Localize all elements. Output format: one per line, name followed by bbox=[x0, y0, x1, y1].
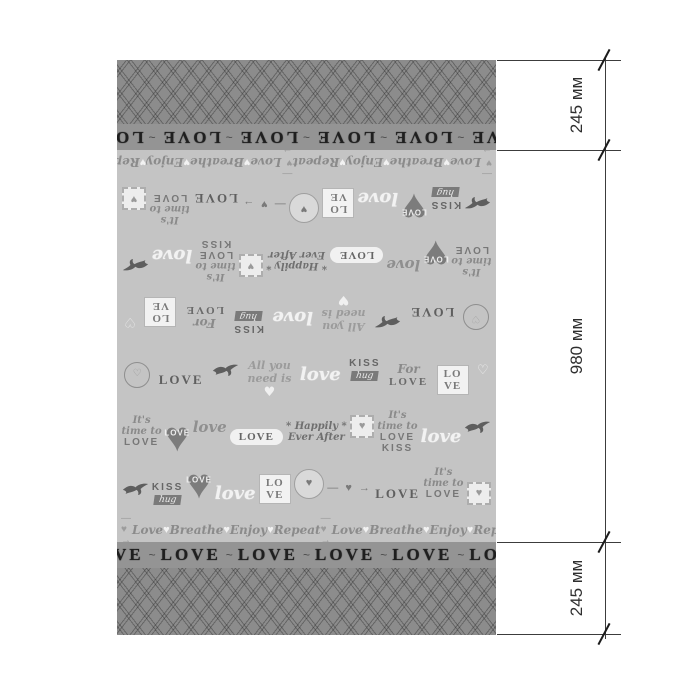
motif-card: LOVE bbox=[322, 189, 354, 219]
motif-stamp: ♥ bbox=[122, 187, 147, 211]
motif-stamp: ♥ bbox=[239, 254, 264, 278]
motif-kiss: KISShug bbox=[233, 311, 264, 334]
band-ornament-icon: ~ bbox=[303, 130, 310, 144]
band-ornament-icon: ~ bbox=[149, 548, 156, 562]
motif-heart: ♥LOVE bbox=[402, 190, 427, 228]
motif-line: love bbox=[215, 483, 256, 504]
motif-line: — ♥ → bbox=[241, 198, 286, 210]
arrow-icon: — ♥ → bbox=[321, 517, 332, 542]
swallow-icon bbox=[122, 259, 149, 273]
motif-scriptw: love bbox=[357, 188, 398, 209]
heart-separator-icon: ♥ bbox=[184, 157, 191, 169]
motif-heart: ♥LOVE bbox=[165, 418, 190, 456]
edge-row: — ♥ →Love♥Breathe♥Enjoy♥Repeat— ♥ →Love♥… bbox=[117, 150, 496, 175]
motif-line: KISS bbox=[233, 323, 264, 334]
motif-allyou: All youneed is♥ bbox=[322, 292, 366, 333]
motif-arrow: — ♥ → bbox=[327, 483, 372, 495]
motif-line: KISS bbox=[152, 482, 183, 493]
motif-heart: ♥LOVE bbox=[423, 237, 448, 275]
motif-scriptw: love bbox=[300, 364, 341, 385]
motif-scriptw: love bbox=[215, 483, 256, 504]
edge-word: Breathe bbox=[390, 156, 444, 170]
motif-line: hug bbox=[350, 371, 379, 381]
motif-banner: LOVE bbox=[330, 248, 383, 264]
pattern-top-half: ♡LOVEAll youneed is♥loveKISShugForLOVELO… bbox=[117, 150, 496, 346]
motif-line: KISS bbox=[200, 239, 231, 250]
motif-line: LOVE bbox=[426, 489, 461, 500]
motif-line: ♥ bbox=[476, 488, 483, 500]
motif-line: VE bbox=[266, 489, 283, 501]
heart-separator-icon: ♥ bbox=[140, 157, 147, 169]
motif-line: LOVE bbox=[193, 191, 238, 207]
motif-line: love bbox=[386, 257, 420, 275]
motif-line: LOVE bbox=[389, 376, 428, 388]
motif-moon: ♥ bbox=[294, 469, 324, 499]
love-band-word: LOVE bbox=[315, 545, 375, 565]
motif-line: KISS bbox=[430, 199, 461, 210]
motif-script: love bbox=[386, 257, 420, 275]
motif-timeto: It'stime toLOVE bbox=[451, 244, 491, 277]
motif-line: KISS bbox=[382, 443, 413, 454]
heart-label: LOVE bbox=[423, 255, 449, 264]
motif-line: love bbox=[193, 418, 227, 436]
motif-moon: ♥ bbox=[289, 194, 319, 224]
heart-label: LOVE bbox=[164, 428, 190, 437]
motif-line: ♡ bbox=[133, 369, 142, 380]
dimension-label-middle: 980 мм bbox=[567, 318, 587, 374]
pattern-row: It'stime toLOVE♥LOVEloveLOVE* Happily *E… bbox=[117, 403, 496, 460]
motif-forlove: ForLOVE bbox=[389, 362, 428, 388]
love-band-word: LOVE bbox=[117, 545, 144, 565]
motif-line: LOVE bbox=[339, 250, 374, 262]
motif-arrow: — ♥ → bbox=[241, 198, 286, 210]
love-band-word: LOVE bbox=[315, 127, 375, 147]
band-ornament-icon: ~ bbox=[380, 130, 387, 144]
motif-line: ♡ bbox=[477, 363, 489, 377]
edge-word: Breathe bbox=[369, 523, 423, 537]
edge-row: — ♥ →Love♥Breathe♥Enjoy♥Repeat— ♥ →Love♥… bbox=[117, 517, 496, 542]
edge-word: Enjoy bbox=[146, 156, 183, 170]
edge-word: Enjoy bbox=[346, 156, 383, 170]
motif-line: love bbox=[421, 426, 462, 447]
motif-line: It's bbox=[462, 266, 480, 277]
edge-word: Repeat bbox=[292, 156, 339, 170]
edge-word: Enjoy bbox=[430, 523, 467, 537]
motif-card: LOVE bbox=[144, 298, 176, 328]
motif-badge: ♡ bbox=[124, 362, 150, 388]
dimension-label-bottom: 245 мм bbox=[567, 560, 587, 616]
motif-line: VE bbox=[444, 380, 461, 392]
heart-label: LOVE bbox=[186, 475, 212, 484]
motif-line: ♡ bbox=[471, 312, 480, 323]
motif-line: ♡ bbox=[124, 316, 136, 330]
edge-word: Enjoy bbox=[230, 523, 267, 537]
motif-line: need is bbox=[322, 307, 366, 320]
motif-caps: LOVE bbox=[375, 486, 420, 502]
love-band-word: LOVE bbox=[161, 545, 221, 565]
pattern-row: KISShug♥LOVEloveLOVE♥— ♥ →LOVEIt'stime t… bbox=[117, 175, 496, 232]
motif-card: LOVE bbox=[437, 365, 469, 395]
motif-line: LOVE bbox=[454, 244, 489, 255]
band-ornament-icon: ~ bbox=[457, 130, 464, 144]
pattern-row: ♡LOVEAll youneed is♥loveKISShugForLOVELO… bbox=[117, 346, 496, 403]
motif-line: It's bbox=[133, 415, 151, 426]
motif-line: It's bbox=[161, 214, 179, 225]
motif-line: Ever After bbox=[268, 250, 325, 261]
motif-line: love bbox=[152, 245, 193, 266]
motif-line: — ♥ → bbox=[327, 483, 372, 495]
motif-script: love bbox=[193, 418, 227, 436]
love-band-word: LOVE bbox=[238, 545, 298, 565]
motif-line: LOVE bbox=[124, 437, 159, 448]
motif-line: ♥ bbox=[338, 292, 350, 307]
motif-allyou: All youneed is♥ bbox=[248, 359, 292, 400]
bottom-lattice-section bbox=[117, 568, 496, 635]
product-dimension-diagram: LOVE~LOVE~LOVE~LOVE~LOVE~LOVE ♡LOVEAll y… bbox=[0, 0, 700, 700]
edge-word: Love bbox=[450, 156, 481, 170]
swallow-icon bbox=[212, 363, 239, 377]
band-ornament-icon: ~ bbox=[380, 548, 387, 562]
top-love-band: LOVE~LOVE~LOVE~LOVE~LOVE~LOVE bbox=[117, 124, 496, 150]
motif-heartsm: ♡ bbox=[124, 316, 136, 330]
motif-happily: * Happily *Ever After bbox=[266, 250, 327, 272]
pattern-area: ♡LOVEAll youneed is♥loveKISShugForLOVELO… bbox=[117, 150, 496, 542]
motif-timeto: It'stime toLOVEKISS bbox=[377, 410, 417, 454]
motif-line: ♥ bbox=[359, 421, 366, 433]
motif-line: LOVE bbox=[185, 305, 224, 317]
motif-heart: ♥LOVE bbox=[187, 465, 212, 503]
motif-caps: LOVE bbox=[193, 191, 238, 207]
swallow-icon bbox=[464, 420, 491, 434]
motif-line: It's bbox=[207, 272, 225, 283]
motif-line: * Happily * bbox=[266, 261, 327, 272]
motif-timeto: It'stime toLOVE bbox=[122, 415, 162, 448]
motif-line: LOVE bbox=[239, 431, 274, 443]
edge-word: Repeat bbox=[274, 523, 321, 537]
motif-line: LOVE bbox=[380, 432, 415, 443]
fabric-panel: LOVE~LOVE~LOVE~LOVE~LOVE~LOVE ♡LOVEAll y… bbox=[117, 60, 496, 635]
motif-kiss: KISShug bbox=[430, 187, 461, 210]
motif-line: ♥ bbox=[248, 260, 255, 272]
motif-line: time to bbox=[377, 421, 417, 432]
pattern-row: It'stime toLOVE♥LOVEloveLOVE* Happily *E… bbox=[117, 232, 496, 289]
motif-line: VE bbox=[330, 192, 347, 204]
love-band-word: LOVE bbox=[238, 127, 298, 147]
motif-line: time to bbox=[122, 426, 162, 437]
love-band-word: LOVE bbox=[469, 127, 496, 147]
edge-word: Love bbox=[332, 523, 363, 537]
bottom-love-band: LOVE~LOVE~LOVE~LOVE~LOVE~LOVE bbox=[117, 542, 496, 568]
motif-line: LOVE bbox=[409, 305, 454, 321]
motif-line: hug bbox=[234, 311, 263, 321]
motif-line: ♥ bbox=[131, 193, 138, 205]
motif-kiss: KISShug bbox=[152, 482, 183, 505]
motif-caps: LOVE bbox=[409, 305, 454, 321]
motif-stamp: ♥ bbox=[350, 415, 375, 439]
motif-timeto: It'stime toLOVE bbox=[150, 192, 190, 225]
love-band-word: LOVE bbox=[392, 545, 452, 565]
motif-badge: ♡ bbox=[463, 305, 489, 331]
band-ornament-icon: ~ bbox=[226, 130, 233, 144]
dimension-label-top: 245 мм bbox=[567, 77, 587, 133]
arrow-icon: — ♥ → bbox=[121, 517, 132, 542]
swallow-icon bbox=[374, 316, 401, 330]
motif-heartsm: ♡ bbox=[477, 363, 489, 377]
edge-word: Love bbox=[250, 156, 281, 170]
motif-line: love bbox=[357, 188, 398, 209]
heart-separator-icon: ♥ bbox=[244, 157, 251, 169]
edge-word: Love bbox=[132, 523, 163, 537]
band-ornament-icon: ~ bbox=[226, 548, 233, 562]
edge-word: Breathe bbox=[190, 156, 244, 170]
edge-word: Repeat bbox=[117, 156, 140, 170]
motif-line: It's bbox=[388, 410, 406, 421]
motif-line: ♥ bbox=[306, 478, 313, 490]
love-band-word: LOVE bbox=[117, 127, 144, 147]
pattern-row: ♡LOVEAll youneed is♥loveKISShugForLOVELO… bbox=[117, 289, 496, 346]
edge-word: Breathe bbox=[170, 523, 224, 537]
motif-line: Ever After bbox=[288, 432, 345, 443]
motif-scriptw: love bbox=[152, 245, 193, 266]
motif-timeto: It'stime toLOVEKISS bbox=[195, 239, 235, 283]
band-ornament-icon: ~ bbox=[303, 548, 310, 562]
motif-line: ♥ bbox=[264, 385, 276, 400]
motif-card: LOVE bbox=[259, 474, 291, 504]
motif-line: time to bbox=[451, 255, 491, 266]
motif-stamp: ♥ bbox=[467, 482, 492, 506]
motif-timeto: It'stime toLOVE bbox=[423, 467, 463, 500]
motif-line: LOVE bbox=[159, 372, 204, 388]
motif-line: For bbox=[193, 317, 215, 331]
heart-separator-icon: ♥ bbox=[383, 157, 390, 169]
love-band-word: LOVE bbox=[469, 545, 496, 565]
heart-separator-icon: ♥ bbox=[339, 157, 346, 169]
band-ornament-icon: ~ bbox=[149, 130, 156, 144]
motif-line: love bbox=[300, 364, 341, 385]
motif-line: time to bbox=[150, 203, 190, 214]
motif-scriptw: love bbox=[421, 426, 462, 447]
motif-line: LO bbox=[266, 477, 284, 489]
pattern-bottom-half: ♡LOVEAll youneed is♥loveKISShugForLOVELO… bbox=[117, 346, 496, 542]
motif-line: All you bbox=[248, 359, 290, 372]
top-lattice-section bbox=[117, 60, 496, 124]
motif-line: VE bbox=[152, 301, 169, 313]
motif-line: LO bbox=[329, 204, 347, 216]
motif-line: ♥ bbox=[301, 203, 308, 215]
heart-separator-icon: ♥ bbox=[443, 157, 450, 169]
motif-line: For bbox=[397, 362, 419, 376]
motif-happily: * Happily *Ever After bbox=[286, 421, 347, 443]
swallow-icon bbox=[464, 197, 491, 211]
motif-line: It's bbox=[434, 467, 452, 478]
motif-scriptw: love bbox=[272, 307, 313, 328]
swallow-icon bbox=[122, 482, 149, 496]
motif-line: LOVE bbox=[375, 486, 420, 502]
pattern-row: KISShug♥LOVEloveLOVE♥— ♥ →LOVEIt'stime t… bbox=[117, 460, 496, 517]
motif-line: * Happily * bbox=[286, 421, 347, 432]
motif-line: time to bbox=[195, 261, 235, 272]
motif-line: love bbox=[272, 307, 313, 328]
edge-word: Repeat bbox=[473, 523, 496, 537]
motif-line: LOVE bbox=[152, 192, 187, 203]
motif-line: LOVE bbox=[198, 250, 233, 261]
motif-line: LO bbox=[444, 368, 462, 380]
heart-label: LOVE bbox=[401, 208, 427, 217]
motif-caps: LOVE bbox=[159, 372, 204, 388]
motif-line: All you bbox=[322, 320, 364, 333]
arrow-icon: — ♥ → bbox=[481, 150, 492, 175]
motif-banner: LOVE bbox=[230, 429, 283, 445]
motif-line: hug bbox=[153, 495, 182, 505]
arrow-icon: — ♥ → bbox=[281, 150, 292, 175]
love-band-word: LOVE bbox=[161, 127, 221, 147]
motif-line: hug bbox=[431, 187, 460, 197]
motif-kiss: KISShug bbox=[349, 358, 380, 381]
motif-forlove: ForLOVE bbox=[185, 305, 224, 331]
love-band-word: LOVE bbox=[392, 127, 452, 147]
motif-line: need is bbox=[248, 372, 292, 385]
motif-line: time to bbox=[423, 478, 463, 489]
motif-line: KISS bbox=[349, 358, 380, 369]
band-ornament-icon: ~ bbox=[457, 548, 464, 562]
motif-line: LO bbox=[151, 313, 169, 325]
